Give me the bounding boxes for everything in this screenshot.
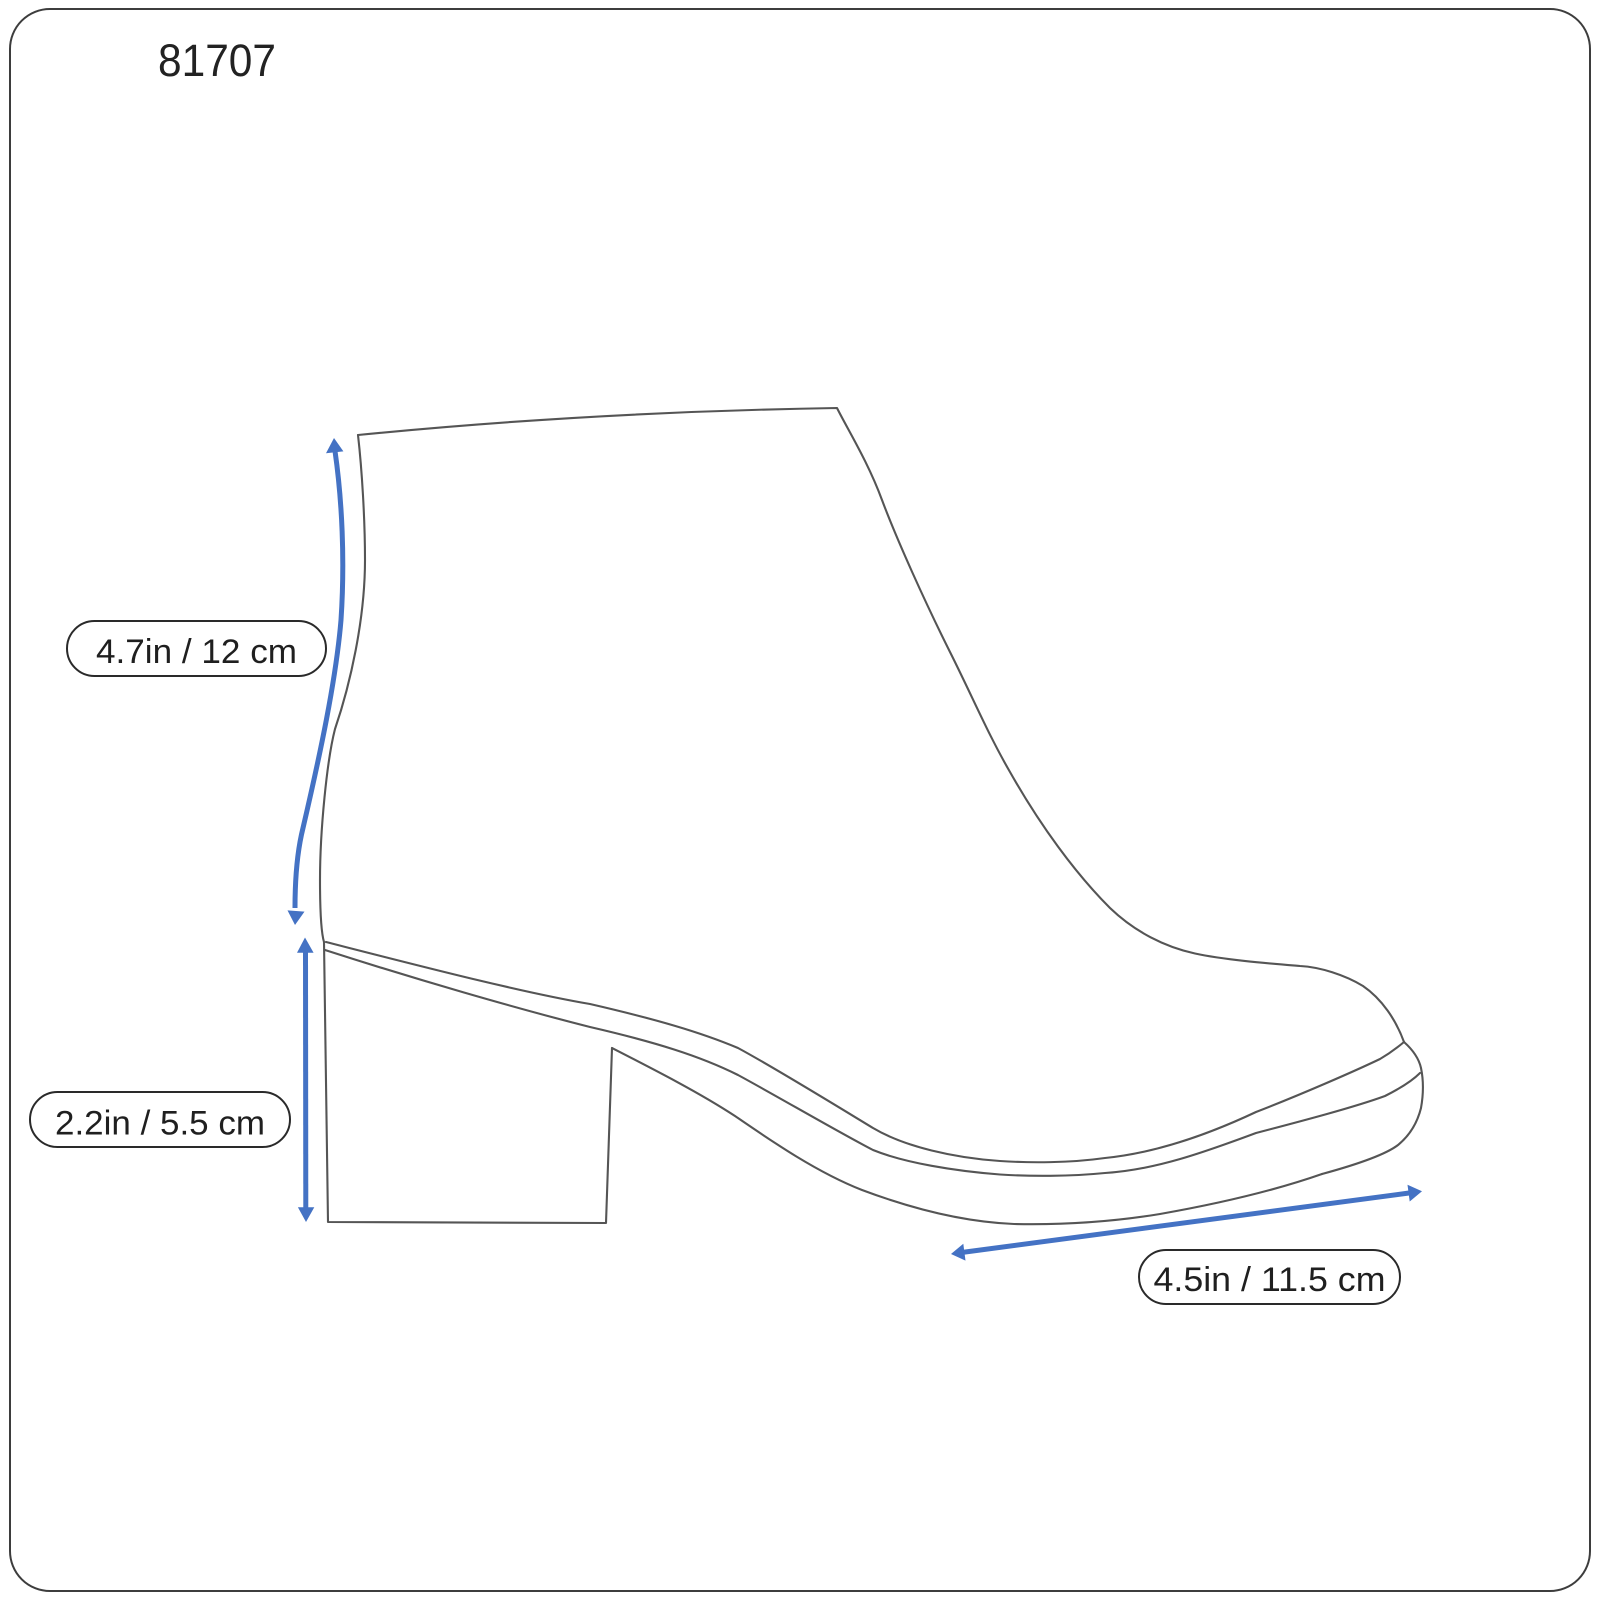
svg-text:2.2in / 5.5 cm: 2.2in / 5.5 cm [55,1105,265,1143]
svg-text:4.5in / 11.5 cm: 4.5in / 11.5 cm [1154,1261,1386,1299]
svg-text:4.7in / 12 cm: 4.7in / 12 cm [96,633,297,671]
svg-text:81707: 81707 [158,35,276,86]
